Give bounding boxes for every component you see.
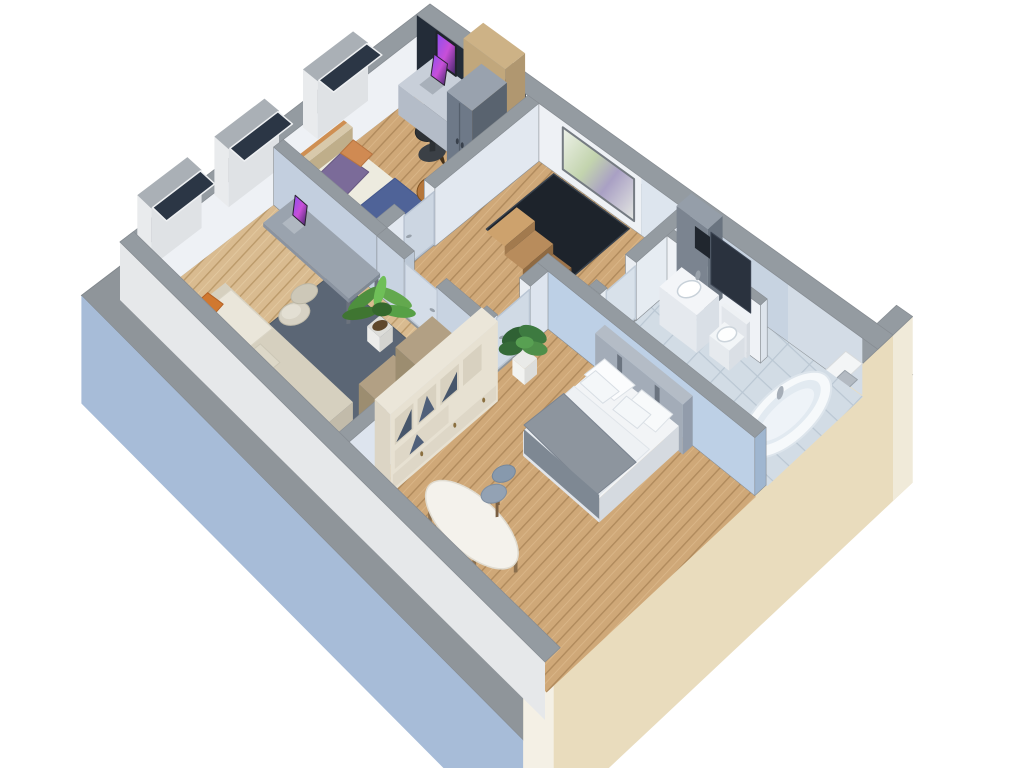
shelf-handle-2 [453,423,456,428]
shelf-handle-3 [482,398,485,403]
floor-plan-image [0,0,1024,768]
broadleaf-leaf-5 [516,337,534,349]
foundation-corner-strip-right [893,317,913,501]
wardrobe-handle-left [456,138,459,144]
floor-plan-render [0,0,1024,768]
palm-center [372,302,392,316]
shelf-handle-1 [420,451,423,456]
wardrobe-handle-right [461,142,464,148]
